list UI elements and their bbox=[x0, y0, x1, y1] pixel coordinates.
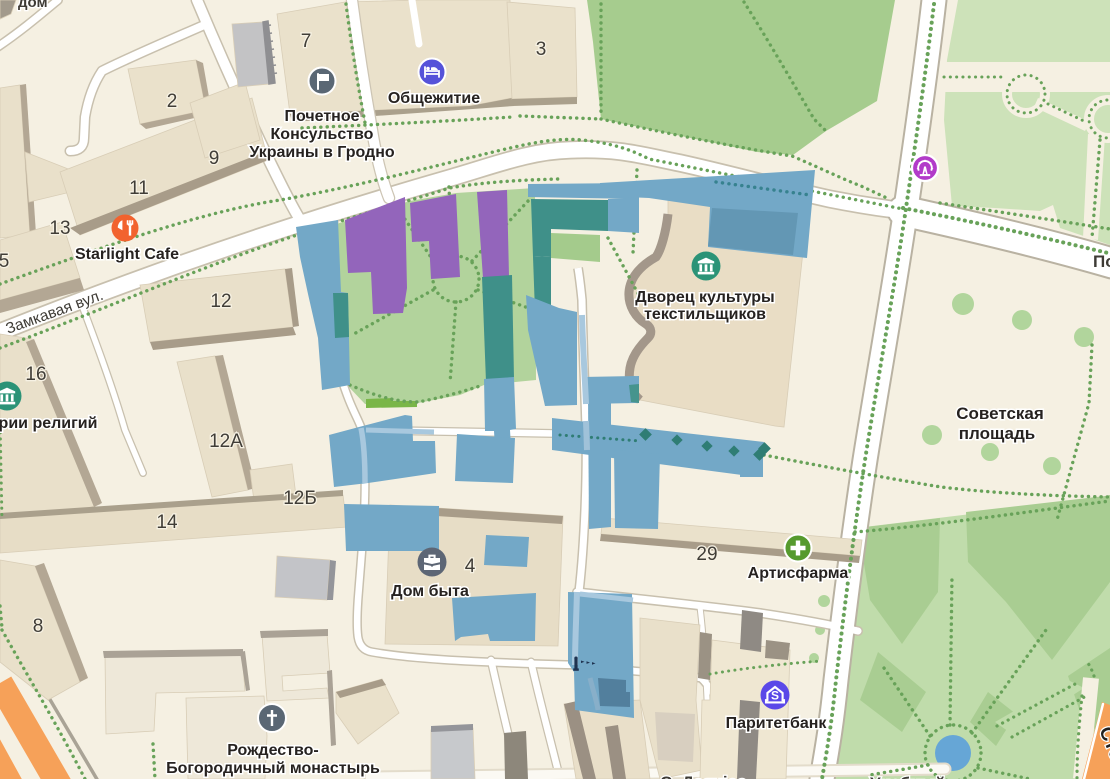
svg-text:текстильщиков: текстильщиков bbox=[644, 306, 766, 323]
svg-text:Учебный: Учебный bbox=[870, 774, 945, 779]
svg-text:3: 3 bbox=[536, 39, 547, 60]
svg-text:S: S bbox=[771, 689, 779, 703]
svg-text:7: 7 bbox=[301, 31, 312, 52]
svg-text:12А: 12А bbox=[209, 431, 243, 452]
svg-text:По: По bbox=[1093, 252, 1110, 271]
svg-text:Starlight Cafe: Starlight Cafe bbox=[75, 246, 179, 263]
svg-text:Советская: Советская bbox=[956, 404, 1044, 423]
svg-text:12: 12 bbox=[210, 291, 231, 312]
svg-text:Дворец культуры: Дворец культуры bbox=[635, 289, 774, 306]
svg-text:Артисфарма: Артисфарма bbox=[748, 565, 849, 582]
svg-text:9: 9 bbox=[209, 148, 220, 169]
svg-text:Дом быта: Дом быта bbox=[391, 583, 469, 600]
svg-text:Богородичный монастырь: Богородичный монастырь bbox=[166, 760, 380, 777]
svg-text:16: 16 bbox=[25, 364, 46, 385]
svg-text:12Б: 12Б bbox=[283, 488, 317, 509]
svg-text:8: 8 bbox=[33, 616, 44, 637]
svg-text:14: 14 bbox=[156, 512, 178, 533]
svg-text:С. Дзяніса: С. Дзяніса bbox=[660, 773, 747, 779]
svg-text:4: 4 bbox=[465, 556, 476, 577]
svg-text:Рождество-: Рождество- bbox=[227, 742, 318, 759]
svg-text:рии религий: рии религий bbox=[0, 415, 97, 432]
svg-text:дом: дом bbox=[18, 0, 48, 11]
svg-text:Украины в Гродно: Украины в Гродно bbox=[249, 144, 395, 161]
svg-text:Паритетбанк: Паритетбанк bbox=[726, 715, 828, 732]
svg-text:11: 11 bbox=[129, 178, 149, 199]
svg-text:Почетное: Почетное bbox=[284, 108, 359, 125]
svg-text:Общежитие: Общежитие bbox=[388, 90, 480, 107]
svg-text:площадь: площадь bbox=[959, 424, 1035, 443]
svg-text:5: 5 bbox=[0, 251, 9, 272]
svg-text:Консульство: Консульство bbox=[271, 126, 374, 143]
svg-text:2: 2 bbox=[167, 91, 178, 112]
svg-text:13: 13 bbox=[49, 218, 70, 239]
svg-text:29: 29 bbox=[696, 544, 717, 565]
